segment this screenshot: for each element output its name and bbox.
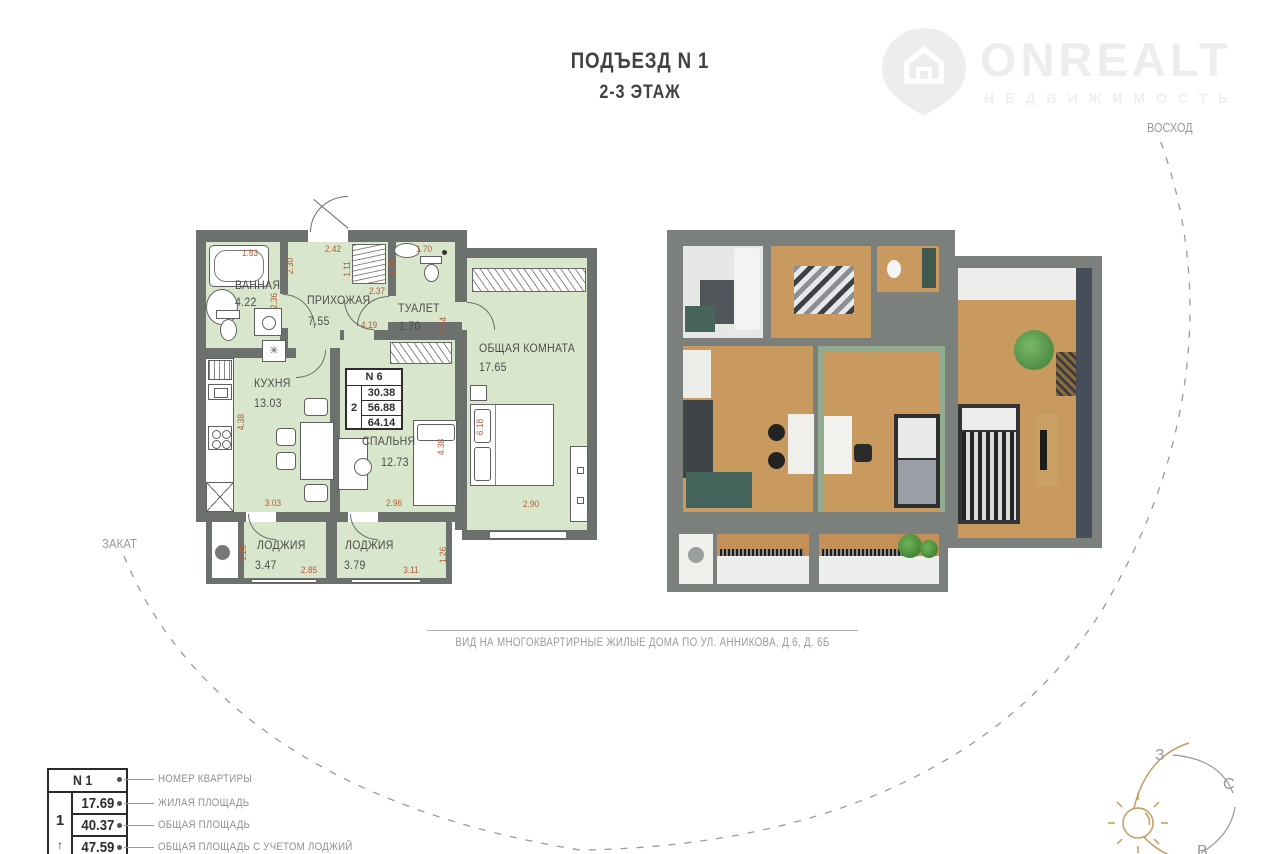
legend-floor-arrow: ↑	[52, 838, 68, 852]
room-label-loggia1: ЛОДЖИЯ	[257, 538, 306, 552]
dim-label: 6.18	[475, 419, 485, 435]
wardrobe-hatch	[472, 268, 586, 292]
dim-label: 1.26	[238, 545, 248, 561]
room-area-loggia1: 3.47	[255, 558, 277, 572]
render-kitchen-counter	[683, 400, 713, 478]
wall	[340, 330, 344, 340]
cabinet	[206, 482, 234, 512]
washing-machine	[254, 308, 282, 336]
render-bed	[894, 414, 940, 508]
logo-pin-icon	[878, 24, 970, 116]
logo-wordmark: ONREALT	[980, 32, 1232, 87]
chair	[276, 428, 296, 446]
room-label-bathroom: ВАННАЯ	[235, 278, 280, 292]
render-rug	[794, 266, 854, 314]
dim-label: 1.05	[387, 259, 397, 275]
room-area-bedroom: 12.73	[381, 455, 409, 469]
legend-label: НОМЕР КВАРТИРЫ	[158, 773, 252, 785]
compass-east: В	[1197, 843, 1208, 854]
legend-label: ЖИЛАЯ ПЛОЩАДЬ	[158, 797, 249, 809]
render-kitchen-units	[683, 350, 711, 398]
room-label-hallway: ПРИХОЖАЯ	[307, 293, 370, 307]
nightstand	[470, 385, 487, 401]
fridge	[208, 360, 232, 380]
room-area-hallway: 7.55	[308, 314, 330, 328]
legend-leader	[124, 803, 154, 804]
chair	[276, 452, 296, 470]
render-plant	[1014, 330, 1054, 370]
wardrobe-hatch	[390, 342, 452, 364]
stove	[208, 426, 232, 450]
dim-label: 2.96	[386, 498, 402, 508]
render-desk	[824, 416, 852, 474]
render-accent-wall	[1076, 268, 1092, 538]
render-cabinet	[685, 306, 715, 332]
wall	[196, 230, 308, 242]
dim-label: 1.70	[416, 244, 432, 254]
legend-leader	[124, 779, 154, 780]
dim-label: 4.38	[236, 414, 246, 430]
render-chair	[768, 452, 785, 469]
wall	[326, 522, 337, 584]
dim-label: 2.37	[369, 286, 385, 296]
dim-label: 1.11	[342, 261, 352, 277]
room-area-bathroom: 4.22	[235, 295, 257, 309]
rooms-count: 2	[347, 386, 362, 429]
sunset-label: ЗАКАТ	[102, 536, 137, 551]
room-label-living: ОБЩАЯ КОМНАТА	[479, 341, 575, 355]
render-bedroom-wall	[818, 346, 945, 352]
wall	[462, 248, 597, 258]
vent-box: ✳	[262, 340, 286, 362]
render-chair	[768, 424, 785, 441]
dim-label: 2.36	[269, 293, 279, 309]
toilet-bowl	[424, 264, 439, 282]
sun-icon	[1085, 745, 1255, 854]
sunrise-label: ВОСХОД	[1147, 121, 1193, 135]
page-subtitle: 2-3 ЭТАЖ	[428, 82, 853, 104]
wall	[196, 512, 246, 522]
legend-leader	[124, 825, 154, 826]
page-title: ПОДЪЕЗД N 1	[428, 48, 853, 74]
apartment-info-box: N 6 2 30.38 56.88 64.14	[345, 368, 403, 430]
vent-dot	[442, 250, 447, 255]
render-striped-bed	[958, 404, 1020, 524]
window	[252, 579, 316, 583]
wall	[378, 512, 462, 522]
dim-label: 1.26	[438, 547, 448, 563]
dresser	[570, 446, 588, 522]
room-label-kitchen: КУХНЯ	[254, 376, 291, 390]
legend-floor: 1	[52, 812, 68, 829]
legend-value: 47.59	[75, 839, 121, 854]
render-bathtub	[734, 248, 760, 330]
render-caption: ВИД НА МНОГОКВАРТИРНЫЕ ЖИЛЫЕ ДОМА ПО УЛ.…	[436, 637, 848, 649]
render-kitchen-cabinet	[686, 472, 752, 508]
dim-label: 2.90	[523, 499, 539, 509]
legend-label: ОБЩАЯ ПЛОЩАДЬ	[158, 819, 250, 831]
render-plant	[898, 534, 922, 558]
legend-apartment-number: N 1	[47, 772, 118, 788]
render-loggia1-floor	[717, 556, 809, 584]
render-desk-chair	[854, 444, 872, 462]
onrealt-logo: ONREALT НЕДВИЖИМОСТЬ	[878, 24, 1238, 120]
dim-label: 2.30	[285, 258, 295, 274]
room-label-toilet: ТУАЛЕТ	[398, 301, 440, 315]
legend-leader	[124, 847, 154, 848]
apartment-number: N 6	[347, 370, 401, 386]
render-loggia-pocket	[679, 534, 713, 584]
legend-value: 40.37	[75, 817, 121, 834]
wall	[455, 230, 467, 302]
sink	[206, 289, 238, 325]
toilet-bowl	[220, 319, 237, 341]
total-area-loggias-value: 64.14	[362, 416, 401, 430]
render-plant	[920, 540, 938, 558]
dim-label: 3.11	[403, 565, 419, 575]
legend-bullet	[117, 845, 122, 850]
compass-north: С	[1223, 776, 1235, 794]
legend-table-line	[73, 813, 128, 815]
caption-divider	[427, 630, 858, 631]
room-area-living: 17.65	[479, 360, 507, 374]
legend-table-line	[47, 791, 128, 793]
kitchen-sink	[208, 384, 232, 400]
room-label-bedroom: СПАЛЬНЯ	[362, 434, 415, 448]
wall	[196, 230, 206, 522]
legend-value: 17.69	[75, 795, 121, 812]
column-dot	[215, 545, 230, 560]
render-living-ceiling	[958, 268, 1092, 304]
floor-plan-page: ПОДЪЕЗД N 1 2-3 ЭТАЖ ONREALT НЕДВИЖИМОСТ…	[0, 0, 1280, 854]
bed	[413, 420, 457, 506]
room-area-toilet: 1.70	[399, 319, 421, 333]
bed	[470, 404, 554, 486]
render-dining-table	[788, 414, 814, 474]
toilet-tank	[216, 310, 240, 319]
window	[352, 579, 420, 583]
dim-label: 2.42	[325, 244, 341, 254]
logo-tagline: НЕДВИЖИМОСТЬ	[984, 90, 1239, 106]
wall	[206, 522, 212, 584]
room-area-loggia2: 3.79	[344, 558, 366, 572]
render-loggia2-floor	[819, 556, 939, 584]
dim-label: 1.83	[242, 248, 258, 258]
render-tv-console	[1036, 414, 1058, 486]
legend-bullet	[117, 801, 122, 806]
legend-table-line	[73, 835, 128, 837]
dim-label: 2.85	[301, 565, 317, 575]
compass-west: З	[1155, 747, 1165, 765]
dim-label: 3.03	[265, 498, 281, 508]
legend-label: ОБЩАЯ ПЛОЩАДЬ С УЧЕТОМ ЛОДЖИЙ	[158, 841, 353, 853]
toilet-tank	[420, 256, 442, 264]
render-wood-slats	[1056, 352, 1076, 396]
wardrobe-hatch	[352, 244, 386, 284]
desk-chair	[354, 458, 372, 476]
window	[490, 531, 566, 539]
dining-table	[300, 422, 334, 480]
wall	[276, 512, 348, 522]
legend-table-line	[71, 791, 73, 854]
dim-label: 4.38	[436, 439, 446, 455]
room-area-kitchen: 13.03	[254, 396, 282, 410]
chair	[304, 398, 328, 416]
legend-bullet	[117, 777, 122, 782]
living-area-value: 30.38	[362, 386, 401, 401]
wall	[587, 248, 597, 540]
render-wardrobe	[922, 248, 936, 288]
room-label-loggia2: ЛОДЖИЯ	[345, 538, 394, 552]
dim-label: 1.24	[438, 317, 448, 333]
dim-label: 4.19	[361, 320, 377, 330]
wall	[348, 230, 462, 242]
legend-bullet	[117, 823, 122, 828]
chair	[304, 484, 328, 502]
total-area-value: 56.88	[362, 401, 401, 416]
render-toilet	[887, 260, 901, 278]
